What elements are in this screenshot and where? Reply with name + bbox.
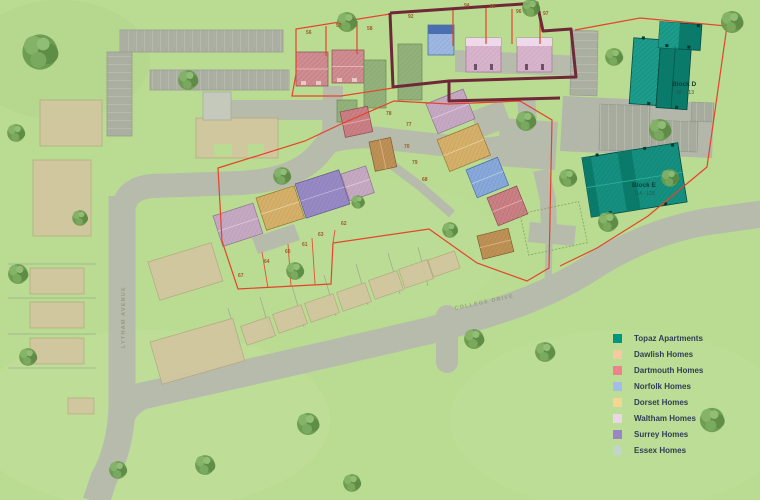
plot-number: 57: [336, 23, 342, 29]
block-d-label: Block D: [672, 81, 697, 88]
block-e-plots: 114 - 129: [634, 191, 655, 197]
plot-number: 67: [238, 273, 244, 279]
legend-label: Norfolk Homes: [634, 382, 691, 391]
plot-number: 96: [516, 9, 522, 15]
legend-item: Surrey Homes: [613, 430, 703, 439]
legend-label: Dartmouth Homes: [634, 366, 703, 375]
plot-number: 94: [464, 3, 470, 9]
legend-swatch: [613, 446, 622, 455]
dartmouth-house: [332, 50, 364, 83]
plot-number: 64: [264, 259, 270, 265]
legend-item: Dartmouth Homes: [613, 366, 703, 375]
plot-number: 95: [490, 4, 496, 10]
legend-swatch: [613, 430, 622, 439]
plot-number: 68: [422, 177, 428, 183]
legend-item: Norfolk Homes: [613, 382, 703, 391]
legend-swatch: [613, 382, 622, 391]
norfolk-apartment: [428, 25, 454, 55]
legend-swatch: [613, 366, 622, 375]
plot-number: 70: [404, 144, 410, 150]
plot-number: 61: [302, 242, 308, 248]
legend-swatch: [613, 398, 622, 407]
legend-item: Dawlish Homes: [613, 350, 703, 359]
waltham-apartment: [517, 38, 552, 72]
plot-number: 65: [285, 249, 291, 255]
legend: Topaz ApartmentsDawlish HomesDartmouth H…: [613, 334, 703, 462]
waltham-apartment: [466, 38, 501, 72]
plot-number: 56: [306, 30, 312, 36]
plot-number: 92: [408, 14, 414, 20]
legend-label: Dorset Homes: [634, 398, 688, 407]
legend-item: Topaz Apartments: [613, 334, 703, 343]
dartmouth-house: [296, 52, 328, 86]
legend-label: Topaz Apartments: [634, 334, 703, 343]
plot-number: 77: [406, 122, 412, 128]
plot-number: 97: [543, 11, 549, 17]
legend-item: Dorset Homes: [613, 398, 703, 407]
garage-block: [203, 92, 231, 120]
plot-number: 63: [318, 232, 324, 238]
legend-swatch: [613, 414, 622, 423]
road-name-lytham: LYTHAM AVENUE: [121, 286, 127, 348]
plot-number: 58: [367, 26, 373, 32]
plot-number: 78: [386, 111, 392, 117]
legend-item: Waltham Homes: [613, 414, 703, 423]
legend-item: Essex Homes: [613, 446, 703, 455]
block-e-label: Block E: [632, 182, 657, 189]
plot-number: 62: [341, 221, 347, 227]
legend-label: Waltham Homes: [634, 414, 696, 423]
legend-label: Dawlish Homes: [634, 350, 693, 359]
legend-swatch: [613, 350, 622, 359]
legend-label: Surrey Homes: [634, 430, 688, 439]
legend-swatch: [613, 334, 622, 343]
plot-number: 79: [412, 160, 418, 166]
block-d-plots: 98 - 113: [676, 90, 694, 96]
legend-label: Essex Homes: [634, 446, 686, 455]
